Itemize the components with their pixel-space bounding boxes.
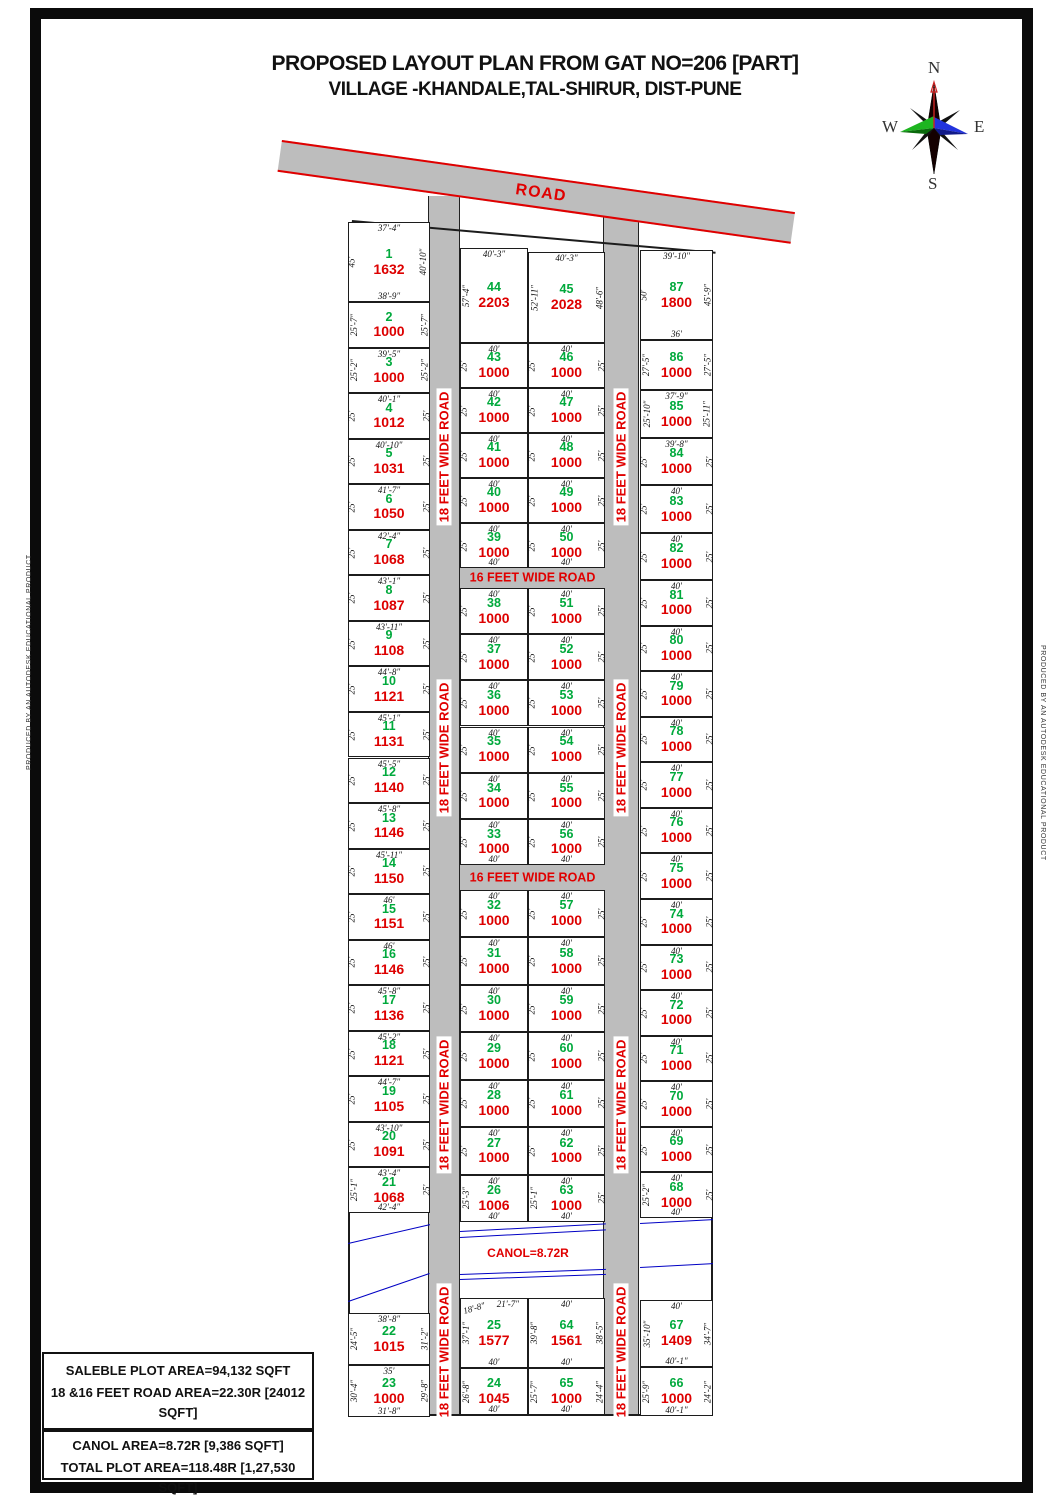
plot-area: 1000 — [551, 455, 582, 470]
plot-dim-right: 25' — [597, 1145, 607, 1156]
plot-number: 36 — [487, 689, 501, 703]
plot-19: 44'-7"19110525'25' — [348, 1076, 430, 1122]
plot-60: 40'60100025'25' — [528, 1032, 605, 1079]
plot-dim-left: 25' — [638, 504, 648, 515]
plot-area: 1000 — [478, 657, 509, 672]
plot-dim-right: 25' — [422, 866, 432, 877]
plot-center: 701000 — [641, 1082, 712, 1126]
plot-dim-bottom: 40' — [641, 1207, 712, 1217]
plot-area: 1000 — [478, 500, 509, 515]
plot-46: 40'46100025'25' — [528, 343, 605, 388]
plot-dim-right: 25' — [705, 1099, 715, 1110]
plot-48: 40'48100025'25' — [528, 433, 605, 478]
plot-dim-right: 25' — [705, 734, 715, 745]
plot-dim-left: 25' — [346, 501, 356, 512]
road-18ft-west-label: 18 FEET WIDE ROAD — [437, 389, 452, 526]
plot-dim-right: 40'-10" — [418, 249, 428, 276]
plot-45: 40'-3"45202852'-11"48'-6" — [528, 252, 605, 343]
plot-dim-right: 25' — [597, 1003, 607, 1014]
plot-dim-bottom: 40' — [461, 1404, 527, 1414]
plot-center: 291000 — [461, 1033, 527, 1078]
plot-center: 161146 — [349, 941, 429, 985]
plot-number: 79 — [670, 680, 684, 694]
plot-number: 15 — [382, 903, 396, 917]
plot-center: 751000 — [641, 854, 712, 898]
plot-area: 1000 — [478, 1150, 509, 1165]
plot-area: 1000 — [478, 703, 509, 718]
title-line-1: PROPOSED LAYOUT PLAN FROM GAT NO=206 [PA… — [40, 52, 1030, 76]
plot-area: 1000 — [478, 455, 509, 470]
plot-dim-left: 25' — [458, 495, 468, 506]
plot-number: 10 — [382, 675, 396, 689]
plot-number: 64 — [560, 1319, 574, 1333]
plot-area: 1000 — [551, 1056, 582, 1071]
plot-dim-left: 25' — [526, 606, 536, 617]
plot-center: 431000 — [461, 344, 527, 387]
plot-dim-right: 48'-6" — [594, 286, 604, 308]
plot-number: 65 — [560, 1377, 574, 1391]
plot-area: 1000 — [478, 961, 509, 976]
plot-dim-left: 25'-2" — [641, 1184, 651, 1206]
plot-20: 43'-10"20109125'25' — [348, 1122, 430, 1168]
plot-area: 1108 — [374, 643, 404, 658]
plot-area: 1087 — [373, 598, 404, 613]
plot-area: 1000 — [478, 410, 509, 425]
plot-dim-right: 25' — [597, 836, 607, 847]
plot-dim-left: 25' — [526, 744, 536, 755]
compass-rose: N S W E — [886, 62, 982, 194]
plot-54: 40'54100025'25' — [528, 727, 605, 773]
plot-center: 571000 — [529, 891, 604, 936]
plot-number: 84 — [670, 447, 684, 461]
plot-dim-right: 25' — [422, 1094, 432, 1105]
plot-40: 40'40100025' — [460, 478, 528, 523]
plot-center: 771000 — [641, 763, 712, 807]
plot-number: 70 — [670, 1090, 684, 1104]
plot-dim-bottom: 40' — [529, 1211, 604, 1221]
plot-85: 37'-9"85100025'-10"25'-11" — [640, 390, 713, 438]
plot-dim-bottom: 40' — [461, 854, 527, 864]
plot-dim-left: 25' — [526, 652, 536, 663]
plot-78: 40'78100025'25' — [640, 717, 713, 763]
plot-dim-left: 25' — [526, 360, 536, 371]
plot-center: 452028 — [529, 253, 604, 342]
plot-center: 481000 — [529, 434, 604, 477]
plot-center: 341000 — [461, 774, 527, 818]
road-18ft-east-label: 18 FEET WIDE ROAD — [614, 680, 629, 817]
plot-center: 411000 — [461, 434, 527, 477]
plot-number: 5 — [386, 447, 393, 461]
plot-number: 55 — [560, 782, 574, 796]
plot-dim-bottom: 40' — [529, 1357, 604, 1367]
plot-70: 40'70100025'25' — [640, 1081, 713, 1127]
plot-dim-left: 25' — [346, 1048, 356, 1059]
plot-number: 74 — [670, 908, 684, 922]
layout-plan-sheet: PROPOSED LAYOUT PLAN FROM GAT NO=206 [PA… — [0, 0, 1061, 1500]
plot-dim-right: 25' — [597, 652, 607, 663]
plot-area: 1121 — [374, 1053, 404, 1068]
plot-dim-left: 25' — [526, 1051, 536, 1062]
plot-dim-left: 25' — [458, 698, 468, 709]
plot-number: 67 — [670, 1319, 684, 1333]
plot-number: 12 — [382, 766, 396, 780]
plot-dim-right: 25' — [422, 410, 432, 421]
plot-number: 37 — [487, 643, 501, 657]
plot-41: 40'41100025' — [460, 433, 528, 478]
plot-area: 1105 — [374, 1099, 404, 1114]
plot-number: 19 — [382, 1085, 396, 1099]
plot-22: 38'-8"22101524'-5"31'-2" — [348, 1313, 430, 1365]
plot-number: 1 — [386, 248, 393, 262]
plot-57: 40'57100025'25' — [528, 890, 605, 937]
plot-dim-left: 25' — [346, 1139, 356, 1150]
plot-dim-left: 25' — [458, 405, 468, 416]
plot-dim-left: 25' — [638, 1144, 648, 1155]
plot-number: 33 — [487, 828, 501, 842]
plot-86: 86100027'-5"27'-5" — [640, 340, 713, 390]
plot-79: 40'79100025'25' — [640, 671, 713, 717]
plot-area: 1000 — [661, 461, 692, 476]
plot-17: 45'-8"17113625'25' — [348, 985, 430, 1031]
plot-dim-left: 25' — [458, 1003, 468, 1014]
plot-dim-left: 25' — [638, 734, 648, 745]
plot-76: 40'76100025'25' — [640, 808, 713, 854]
plot-dim-bottom: 40' — [461, 557, 527, 567]
plot-area: 1015 — [373, 1339, 404, 1354]
plot-dim-right: 25' — [597, 790, 607, 801]
plot-dim-left: 25' — [346, 775, 356, 786]
plot-dim-left: 25' — [346, 593, 356, 604]
plot-dim-left: 25' — [526, 698, 536, 709]
plot-87: 39'-10"87180050'45'-9"36' — [640, 250, 713, 340]
plot-dim-right: 25' — [422, 911, 432, 922]
plot-center: 781000 — [641, 718, 712, 762]
plot-number: 45 — [560, 283, 574, 297]
plot-center: 461000 — [529, 344, 604, 387]
plot-dim-left: 25' — [526, 1145, 536, 1156]
plot-dim-right: 24'-4" — [594, 1380, 604, 1402]
plot-center: 401000 — [461, 479, 527, 522]
summary-saleble-area: SALEBLE PLOT AREA=94,132 SQFT — [44, 1361, 312, 1381]
plot-center: 271000 — [461, 1128, 527, 1173]
road-18ft-west-label: 18 FEET WIDE ROAD — [437, 1284, 452, 1421]
plot-number: 62 — [560, 1137, 574, 1151]
plot-area: 1000 — [478, 365, 509, 380]
plot-72: 40'72100025'25' — [640, 990, 713, 1036]
plot-center: 741000 — [641, 900, 712, 944]
plot-3: 39'-5"3100025'-2"25'-2" — [348, 348, 430, 394]
plot-center: 41012 — [349, 394, 429, 438]
plot-69: 40'69100025'25' — [640, 1127, 713, 1173]
plot-dim-left: 25' — [346, 1094, 356, 1105]
plot-dim-right: 25' — [597, 540, 607, 551]
plot-dim-left: 25' — [458, 956, 468, 967]
plot-dim-left: 25' — [638, 1053, 648, 1064]
plot-center: 381000 — [461, 589, 527, 633]
plot-dim-right: 25' — [597, 698, 607, 709]
plot-dim-right: 25' — [597, 360, 607, 371]
plot-dim-bottom: 40' — [529, 557, 604, 567]
plot-area: 1000 — [661, 921, 692, 936]
plot-number: 78 — [670, 725, 684, 739]
plot-dim-bottom: 40' — [461, 1211, 527, 1221]
plot-area: 1000 — [551, 1150, 582, 1165]
plot-23: 35'23100030'-4"29'-8"31'-8" — [348, 1365, 430, 1417]
plot-area: 1000 — [661, 1012, 692, 1027]
plot-number: 7 — [386, 538, 393, 552]
plot-area: 1000 — [373, 324, 404, 339]
plot-number: 75 — [670, 862, 684, 876]
plot-center: 831000 — [641, 486, 712, 532]
plot-58: 40'58100025'25' — [528, 937, 605, 984]
plot-dim-right: 25' — [705, 916, 715, 927]
plot-number: 86 — [670, 351, 684, 365]
plot-dim-right: 25' — [422, 1139, 432, 1150]
plot-10: 44'-8"10112125'25' — [348, 666, 430, 712]
plot-center: 721000 — [641, 991, 712, 1035]
plot-dim-right: 25' — [705, 1190, 715, 1201]
plot-dim-left: 24'-5" — [349, 1328, 359, 1350]
plot-dim-right: 25'-2" — [419, 359, 429, 381]
plot-dim-left: 25' — [346, 911, 356, 922]
plot-center: 71068 — [349, 531, 429, 575]
plot-area: 1146 — [374, 825, 404, 840]
plot-dim-right: 25' — [422, 456, 432, 467]
plot-center: 821000 — [641, 534, 712, 579]
plot-16: 46'16114625'25' — [348, 940, 430, 986]
plot-dim-right: 25' — [705, 643, 715, 654]
plot-dim-left: 39'-8" — [529, 1322, 539, 1344]
page-title: PROPOSED LAYOUT PLAN FROM GAT NO=206 [PA… — [40, 52, 1030, 101]
plot-number: 18 — [382, 1039, 396, 1053]
plot-dim-right: 25' — [705, 551, 715, 562]
plot-dim-right: 25' — [705, 456, 715, 467]
plot-dim-left: 25' — [346, 866, 356, 877]
plot-area: 1068 — [373, 552, 404, 567]
plot-number: 17 — [382, 994, 396, 1008]
plot-area: 1000 — [661, 556, 692, 571]
plot-center: 841000 — [641, 439, 712, 484]
plot-dim-left: 25'-10" — [642, 401, 652, 428]
plot-number: 23 — [382, 1377, 396, 1391]
plot-number: 77 — [670, 771, 684, 785]
plot-dim-right: 25' — [422, 820, 432, 831]
plot-center: 531000 — [529, 681, 604, 725]
plot-area: 1800 — [661, 295, 692, 310]
plot-area: 1151 — [374, 916, 404, 931]
plot-dim-left: 25' — [526, 540, 536, 551]
compass-north-label: N — [928, 58, 940, 78]
plot-area: 1000 — [551, 1103, 582, 1118]
plot-dim-left: 25'-7" — [529, 1380, 539, 1402]
plot-dim-left: 25' — [638, 1007, 648, 1018]
plot-dim-right: 25' — [422, 729, 432, 740]
plot-area: 1000 — [551, 611, 582, 626]
plot-center: 691000 — [641, 1128, 712, 1172]
plot-dim-right: 25' — [705, 504, 715, 515]
plot-number: 76 — [670, 816, 684, 830]
plot-64: 40'64156139'-8"38'-5"40' — [528, 1298, 605, 1368]
plot-26: 40'26100625'-3"40' — [460, 1175, 528, 1222]
plot-center: 711000 — [641, 1037, 712, 1081]
plot-dim-left: 25' — [638, 551, 648, 562]
plot-dim-right: 25' — [597, 1193, 607, 1204]
plot-dim-right: 25'-7" — [419, 314, 429, 336]
plot-37: 40'37100025' — [460, 634, 528, 680]
plot-43: 40'43100025' — [460, 343, 528, 388]
plot-dim-left: 25' — [638, 871, 648, 882]
plot-18: 45'-2"18112125'25' — [348, 1031, 430, 1077]
plot-number: 14 — [382, 857, 396, 871]
plot-77: 40'77100025'25' — [640, 762, 713, 808]
plot-51: 40'51100025'25' — [528, 588, 605, 634]
road-top-label: ROAD — [514, 181, 567, 206]
plot-2: 2100025'-7"25'-7" — [348, 302, 430, 348]
plot-47: 40'47100025'25' — [528, 388, 605, 433]
plot-dim-left: 25'-7" — [349, 314, 359, 336]
producer-stamp-left: PRODUCED BY AN AUTODESK EDUCATIONAL PROD… — [26, 554, 33, 770]
compass-west-label: W — [882, 117, 898, 137]
plot-dim-left: 25' — [458, 744, 468, 755]
plot-dim-right: 25' — [705, 1007, 715, 1018]
plot-center: 151151 — [349, 895, 429, 939]
plot-dim-right: 25' — [422, 638, 432, 649]
plot-dim-right: 25' — [705, 1144, 715, 1155]
road-16ft-upper: 16 FEET WIDE ROAD — [460, 568, 605, 588]
plot-center: 361000 — [461, 681, 527, 725]
plot-number: 28 — [487, 1089, 501, 1103]
plot-number: 4 — [386, 402, 393, 416]
plot-center: 471000 — [529, 389, 604, 432]
plot-center: 351000 — [461, 728, 527, 772]
plot-53: 40'53100025'25' — [528, 680, 605, 726]
plot-62: 40'62100025'25' — [528, 1127, 605, 1174]
plot-area: 1000 — [551, 749, 582, 764]
plot-84: 39'-8"84100025'25' — [640, 438, 713, 485]
plot-number: 41 — [487, 441, 501, 455]
plot-dim-left: 25' — [458, 836, 468, 847]
plot-area: 1000 — [373, 1391, 404, 1406]
compass-south-label: S — [928, 174, 937, 194]
plot-number: 60 — [560, 1042, 574, 1056]
plot-number: 34 — [487, 782, 501, 796]
plot-49: 40'49100025'25' — [528, 478, 605, 523]
plot-dim-left: 25'-1" — [349, 1179, 359, 1201]
plot-number: 80 — [670, 634, 684, 648]
plot-number: 47 — [560, 396, 574, 410]
plot-dim-left: 25' — [638, 962, 648, 973]
plot-center: 111131 — [349, 713, 429, 757]
plot-35: 40'35100025' — [460, 727, 528, 773]
plot-83: 40'83100025'25' — [640, 485, 713, 533]
plot-area: 1000 — [551, 657, 582, 672]
plot-number: 82 — [670, 542, 684, 556]
plot-dim-right: 25' — [705, 780, 715, 791]
plot-dim-left: 25' — [346, 410, 356, 421]
plot-center: 791000 — [641, 672, 712, 716]
plot-dim-bottom: 40' — [529, 1404, 604, 1414]
plot-number: 39 — [487, 531, 501, 545]
plot-dim-left: 25' — [458, 1098, 468, 1109]
plot-dim-left: 25' — [526, 450, 536, 461]
plot-28: 40'28100025' — [460, 1080, 528, 1127]
plot-number: 22 — [382, 1325, 396, 1339]
plot-dim-left: 25' — [526, 405, 536, 416]
plot-number: 21 — [382, 1176, 396, 1190]
plot-number: 54 — [560, 735, 574, 749]
road-18ft-west-label: 18 FEET WIDE ROAD — [437, 1037, 452, 1174]
plot-center: 121140 — [349, 759, 429, 803]
plot-area: 1000 — [661, 876, 692, 891]
plot-5: 40'-10"5103125'25' — [348, 439, 430, 485]
plot-center: 541000 — [529, 728, 604, 772]
plot-65: 65100025'-7"24'-4"40' — [528, 1368, 605, 1415]
plot-area: 1131 — [374, 734, 404, 749]
plot-area: 1000 — [661, 785, 692, 800]
plot-dim-right: 25'-11" — [701, 401, 711, 427]
plot-dim-left: 25' — [638, 688, 648, 699]
plot-55: 40'55100025'25' — [528, 773, 605, 819]
plot-dim-left: 35'-10" — [642, 1320, 652, 1347]
plot-number: 42 — [487, 396, 501, 410]
road-16ft-lower: 16 FEET WIDE ROAD — [460, 865, 605, 890]
plot-number: 40 — [487, 486, 501, 500]
plot-dim-left: 25' — [458, 652, 468, 663]
plot-7: 42'-4"7106825'25' — [348, 530, 430, 576]
plot-68: 40'68100025'-2"25'40' — [640, 1172, 713, 1218]
plot-dim-right: 25' — [422, 547, 432, 558]
plot-area: 1000 — [478, 795, 509, 810]
producer-stamp-right: PRODUCED BY AN AUTODESK EDUCATIONAL PROD… — [1039, 645, 1046, 861]
plot-center: 61050 — [349, 485, 429, 529]
plot-80: 40'80100025'25' — [640, 626, 713, 672]
plot-dim-left: 25' — [638, 597, 648, 608]
plot-dim-left: 25' — [458, 1051, 468, 1062]
plot-75: 40'75100025'25' — [640, 853, 713, 899]
plot-dim-right: 27'-5" — [702, 354, 712, 376]
road-16ft-lower-label: 16 FEET WIDE ROAD — [460, 870, 605, 884]
plot-dim-bottom: 36' — [641, 329, 712, 339]
plot-56: 40'56100025'25'40' — [528, 819, 605, 865]
plot-number: 49 — [560, 486, 574, 500]
plot-area: 1000 — [551, 913, 582, 928]
plot-dim-left: 25' — [526, 495, 536, 506]
plot-dim-left: 25' — [526, 836, 536, 847]
plot-dim-left: 25' — [458, 1145, 468, 1156]
plot-number: 87 — [670, 281, 684, 295]
plot-area: 2028 — [551, 297, 582, 312]
plot-center: 611000 — [529, 1081, 604, 1126]
plot-dim-left: 25' — [346, 456, 356, 467]
plot-dim-right: 29'-8" — [419, 1380, 429, 1402]
plot-number: 57 — [560, 899, 574, 913]
plot-number: 24 — [487, 1377, 501, 1391]
plot-number: 3 — [386, 356, 393, 370]
plot-center: 551000 — [529, 774, 604, 818]
plot-dim-left: 45' — [346, 257, 356, 268]
plot-area: 1409 — [661, 1333, 692, 1348]
plot-center: 801000 — [641, 627, 712, 671]
plot-center: 761000 — [641, 809, 712, 853]
plot-area: 1000 — [661, 365, 692, 380]
plot-dim-left: 27'-5" — [641, 354, 651, 376]
plot-dim-left: 25' — [346, 957, 356, 968]
road-16ft-upper-label: 16 FEET WIDE ROAD — [460, 570, 605, 584]
plot-area: 1000 — [478, 611, 509, 626]
plot-area: 1031 — [373, 461, 404, 476]
plot-number: 66 — [670, 1377, 684, 1391]
road-18ft-east-label: 18 FEET WIDE ROAD — [614, 1284, 629, 1421]
